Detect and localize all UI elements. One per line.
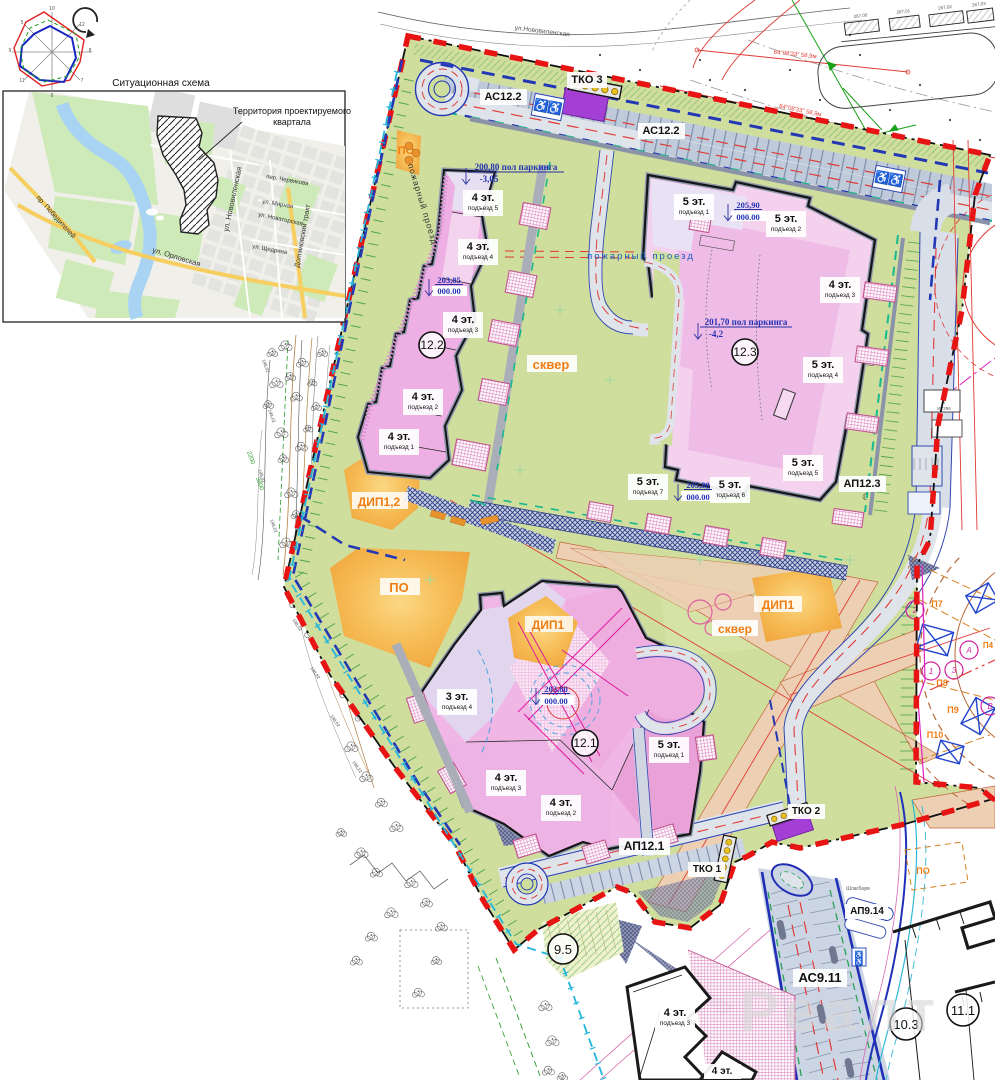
svg-text:9: 9 — [9, 48, 12, 54]
svg-text:205,90: 205,90 — [686, 480, 709, 490]
svg-text:5 эт.: 5 эт. — [792, 457, 815, 469]
svg-text:5: 5 — [21, 20, 24, 26]
svg-text:П4: П4 — [983, 641, 994, 650]
svg-text:1: 1 — [929, 667, 933, 676]
svg-text:201,70 пол паркинга: 201,70 пол паркинга — [705, 317, 788, 327]
svg-text:П9: П9 — [947, 705, 958, 715]
svg-text:ДИП1: ДИП1 — [762, 598, 795, 612]
svg-text:подъезд 3: подъезд 3 — [491, 785, 522, 792]
svg-text:подъезд 6: подъезд 6 — [715, 492, 746, 499]
svg-text:ТКО 1: ТКО 1 — [693, 864, 722, 875]
svg-text:5 эт.: 5 эт. — [683, 196, 706, 208]
svg-text:ИТ296: ИТ296 — [937, 406, 951, 411]
svg-text:сквер: сквер — [533, 357, 570, 372]
svg-text:4 эт.: 4 эт. — [664, 1007, 687, 1019]
svg-text:000.00: 000.00 — [544, 696, 567, 706]
svg-text:5 эт.: 5 эт. — [637, 476, 660, 488]
svg-text:ПО: ПО — [389, 580, 408, 595]
svg-text:000.00: 000.00 — [736, 212, 759, 222]
svg-text:10: 10 — [49, 6, 55, 12]
svg-text:6: 6 — [51, 93, 54, 99]
svg-text:12.3: 12.3 — [733, 345, 757, 359]
svg-text:ПО: ПО — [916, 866, 929, 876]
svg-text:подъезд 3: подъезд 3 — [448, 327, 479, 334]
svg-text:сквер: сквер — [718, 622, 752, 636]
svg-text:☾: ☾ — [862, 492, 870, 502]
svg-text:3: 3 — [952, 666, 957, 675]
svg-text:7: 7 — [81, 78, 84, 84]
svg-text:5 эт.: 5 эт. — [719, 479, 742, 491]
svg-text:подъезд 2: подъезд 2 — [771, 226, 802, 233]
svg-text:подъезд 7: подъезд 7 — [633, 489, 664, 496]
svg-text:4 эт.: 4 эт. — [495, 772, 518, 784]
svg-text:5 эт.: 5 эт. — [775, 213, 798, 225]
svg-text:Ситуационная схема: Ситуационная схема — [112, 78, 210, 89]
svg-text:подъезд 2: подъезд 2 — [546, 810, 577, 817]
svg-text:АС12.2: АС12.2 — [484, 91, 521, 103]
svg-text:П10: П10 — [927, 730, 943, 740]
svg-text:подъезд 5: подъезд 5 — [468, 205, 499, 212]
svg-text:4 эт.: 4 эт. — [472, 192, 495, 204]
svg-text:♿: ♿ — [887, 172, 904, 189]
svg-text:П7: П7 — [931, 599, 942, 609]
svg-text:квартала: квартала — [273, 117, 311, 127]
svg-text:4 эт.: 4 эт. — [712, 1066, 733, 1077]
svg-text:12: 12 — [79, 22, 85, 28]
svg-text:♿: ♿ — [546, 100, 563, 117]
svg-text:АС12.2: АС12.2 — [642, 125, 679, 137]
svg-text:подъезд 4: подъезд 4 — [442, 704, 473, 711]
svg-text:подъезд 1: подъезд 1 — [679, 209, 710, 216]
svg-text:5 эт.: 5 эт. — [658, 739, 681, 751]
svg-text:Территория проектируемого: Территория проектируемого — [233, 106, 351, 116]
svg-text:-3,05: -3,05 — [480, 174, 499, 184]
svg-text:-4,2: -4,2 — [709, 329, 724, 339]
svg-text:4 эт.: 4 эт. — [550, 797, 573, 809]
svg-text:♿: ♿ — [855, 950, 864, 959]
svg-text:3 эт.: 3 эт. — [446, 691, 469, 703]
svg-text:В: В — [987, 702, 993, 711]
svg-text:000.00: 000.00 — [686, 492, 709, 502]
svg-text:Шлагбаум: Шлагбаум — [846, 886, 870, 892]
svg-text:ДИП1: ДИП1 — [532, 618, 565, 632]
svg-text:подъезд 4: подъезд 4 — [463, 254, 494, 261]
svg-text:205,90: 205,90 — [736, 200, 759, 210]
svg-text:203,80: 203,80 — [544, 684, 567, 694]
svg-text:11.1: 11.1 — [951, 1003, 975, 1018]
svg-text:АП12.1: АП12.1 — [624, 839, 665, 853]
svg-text:подъезд 5: подъезд 5 — [788, 470, 819, 477]
svg-text:4 эт.: 4 эт. — [412, 391, 435, 403]
svg-text:4 эт.: 4 эт. — [452, 314, 475, 326]
svg-text:203,85: 203,85 — [437, 275, 460, 285]
svg-text:ДИП1,2: ДИП1,2 — [358, 495, 401, 509]
svg-text:11: 11 — [19, 78, 24, 84]
svg-text:пожарный проезд: пожарный проезд — [587, 251, 695, 262]
svg-text:ТКО 2: ТКО 2 — [792, 806, 821, 817]
svg-text:Реалт: Реалт — [740, 979, 942, 1044]
svg-text:АП9.14: АП9.14 — [850, 906, 884, 917]
svg-text:200,80 пол паркинга: 200,80 пол паркинга — [475, 162, 558, 172]
svg-text:АП12.3: АП12.3 — [843, 478, 880, 490]
svg-text:♿: ♿ — [855, 957, 864, 966]
svg-text:12.1: 12.1 — [573, 736, 597, 750]
svg-text:4 эт.: 4 эт. — [388, 431, 411, 443]
svg-text:подъезд 1: подъезд 1 — [384, 444, 415, 451]
svg-text:ТКО 3: ТКО 3 — [571, 74, 602, 86]
svg-text:подъезд 4: подъезд 4 — [808, 372, 839, 379]
svg-text:подъезд 1: подъезд 1 — [654, 752, 685, 759]
svg-text:12.2: 12.2 — [420, 338, 444, 352]
svg-text:подъезд 3: подъезд 3 — [660, 1020, 691, 1027]
svg-text:000.00: 000.00 — [437, 286, 460, 296]
svg-text:подъезд 3: подъезд 3 — [825, 292, 856, 299]
svg-text:4 эт.: 4 эт. — [467, 241, 490, 253]
svg-text:подъезд 2: подъезд 2 — [408, 404, 439, 411]
svg-text:9.5: 9.5 — [554, 942, 572, 957]
svg-text:4 эт.: 4 эт. — [829, 279, 852, 291]
svg-text:5 эт.: 5 эт. — [812, 359, 835, 371]
svg-text:8: 8 — [89, 48, 92, 54]
svg-text:А: А — [965, 646, 971, 655]
